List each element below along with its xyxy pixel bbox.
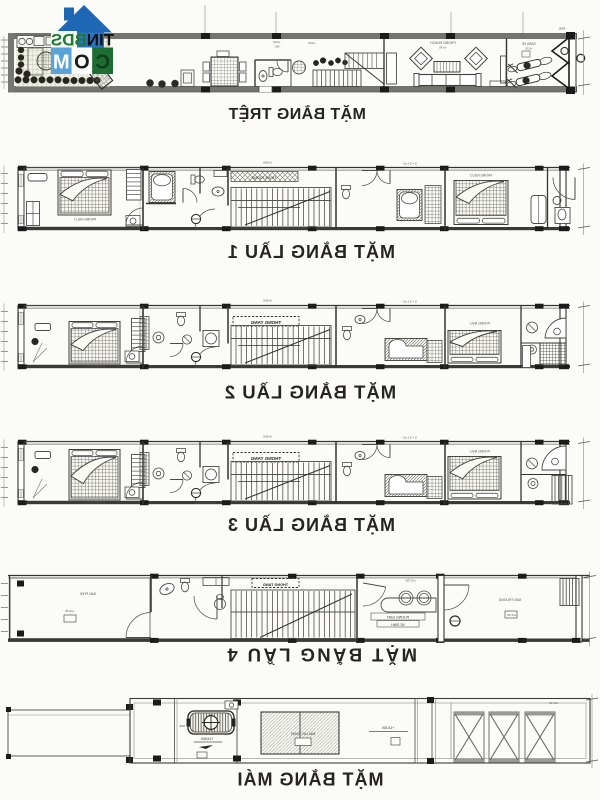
svg-text:PHONG KHACH: PHONG KHACH <box>430 41 456 45</box>
svg-text:+0.20: +0.20 <box>525 47 533 51</box>
svg-text:MẶT BẰNG LẦU 4: MẶT BẰNG LẦU 4 <box>225 645 417 666</box>
svg-text:PHONG NGU 2: PHONG NGU 2 <box>470 174 493 178</box>
svg-text:O: O <box>74 52 90 74</box>
svg-text:M: M <box>53 52 70 74</box>
svg-text:+16.300: +16.300 <box>382 726 394 730</box>
svg-text:S = 21 m2: S = 21 m2 <box>403 300 417 304</box>
svg-text:S = 21 m2: S = 21 m2 <box>403 436 417 440</box>
svg-text:+6.600: +6.600 <box>263 299 273 303</box>
svg-text:+13.45: +13.45 <box>507 613 517 617</box>
svg-text:900L: 900L <box>178 724 185 728</box>
svg-text:MAI LAY SANG: MAI LAY SANG <box>291 732 316 736</box>
svg-text:THONG TANG: THONG TANG <box>263 583 288 587</box>
svg-text:SAN THUONG: SAN THUONG <box>498 598 521 602</box>
svg-text:MẶT BẰNG MÁI: MẶT BẰNG MÁI <box>237 769 384 790</box>
svg-text:PHONG NGU: PHONG NGU <box>469 322 489 326</box>
svg-text:MẶT BẰNG LẦU 3: MẶT BẰNG LẦU 3 <box>227 514 395 535</box>
svg-text:PHONG NGU: PHONG NGU <box>84 365 104 369</box>
svg-text:+16.800: +16.800 <box>201 737 213 741</box>
svg-text:MẶT BẰNG LẦU 1: MẶT BẰNG LẦU 1 <box>227 241 395 262</box>
svg-text:TINBDS: TINBDS <box>51 31 114 50</box>
svg-text:C: C <box>95 52 109 74</box>
svg-text:VE SINH: VE SINH <box>391 623 405 627</box>
svg-text:+0.45: +0.45 <box>439 46 447 50</box>
svg-text:WC: WC <box>275 45 280 49</box>
svg-text:MẶT BẰNG LẦU 2: MẶT BẰNG LẦU 2 <box>224 382 396 403</box>
svg-text:GARA XE: GARA XE <box>522 42 536 46</box>
svg-text:+0.00: +0.00 <box>273 40 281 44</box>
svg-text:PHONG NGU: PHONG NGU <box>84 501 104 505</box>
svg-text:THONG TANG: THONG TANG <box>250 320 281 325</box>
svg-text:+0.00: +0.00 <box>308 41 316 45</box>
svg-text:S = 21 m2: S = 21 m2 <box>403 162 417 166</box>
svg-text:+17.10: +17.10 <box>549 701 559 705</box>
svg-text:+13.45: +13.45 <box>65 609 75 613</box>
svg-text:MẶT BẰNG TRỆT: MẶT BẰNG TRỆT <box>228 104 366 123</box>
svg-text:4500: 4500 <box>558 27 565 31</box>
svg-text:PHONG GIAT: PHONG GIAT <box>386 616 409 620</box>
svg-text:THONG TANG: THONG TANG <box>250 456 281 461</box>
svg-text:PHONG NGU: PHONG NGU <box>469 450 489 454</box>
svg-text:PHONG NGU 1: PHONG NGU 1 <box>74 218 97 222</box>
svg-text:+3.600: +3.600 <box>263 161 273 165</box>
svg-text:+13.750: +13.750 <box>405 579 416 583</box>
svg-text:TU AM TUONG: TU AM TUONG <box>251 176 276 180</box>
svg-text:SAN PHOI: SAN PHOI <box>80 592 96 596</box>
svg-text:+9.600: +9.600 <box>263 435 273 439</box>
